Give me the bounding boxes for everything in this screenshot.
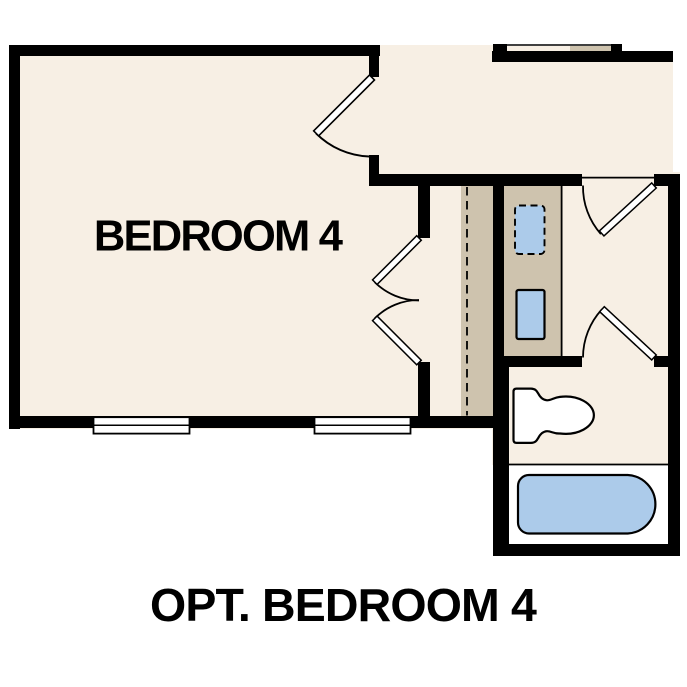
svg-text:OPT. BEDROOM 4: OPT. BEDROOM 4: [150, 579, 537, 631]
svg-text:BEDROOM 4: BEDROOM 4: [94, 213, 343, 261]
